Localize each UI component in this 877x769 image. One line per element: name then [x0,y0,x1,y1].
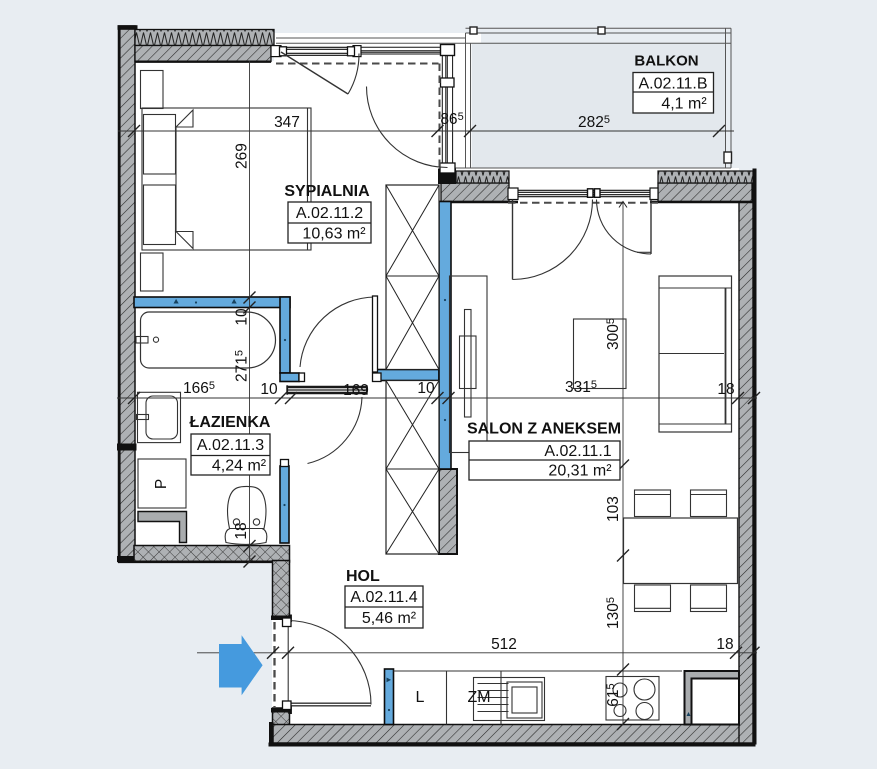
svg-text:A.02.11.3: A.02.11.3 [197,437,264,454]
svg-text:269: 269 [234,143,251,169]
svg-text:512: 512 [491,636,517,653]
svg-text:ŁAZIENKA: ŁAZIENKA [190,414,271,431]
svg-text:4,1 m²: 4,1 m² [661,96,707,113]
svg-text:347: 347 [274,114,300,131]
svg-text:HOL: HOL [346,568,380,585]
svg-text:L: L [416,689,425,706]
svg-text:169: 169 [343,382,369,399]
svg-text:20,31 m²: 20,31 m² [548,463,612,480]
svg-text:SALON Z ANEKSEM: SALON Z ANEKSEM [467,421,621,438]
svg-text:18: 18 [716,636,733,653]
svg-text:P: P [153,479,170,489]
svg-text:10: 10 [417,380,435,397]
svg-text:BALKON: BALKON [634,53,698,70]
svg-text:A.02.11.1: A.02.11.1 [544,443,611,460]
svg-text:103: 103 [605,496,622,522]
svg-text:18: 18 [717,381,734,398]
svg-text:SYPIALNIA: SYPIALNIA [284,183,370,200]
svg-text:A.02.11.B: A.02.11.B [638,76,707,93]
svg-text:A.02.11.2: A.02.11.2 [296,205,363,222]
svg-text:ZM: ZM [467,689,490,706]
svg-text:A.02.11.4: A.02.11.4 [350,589,417,606]
svg-text:10: 10 [260,381,278,398]
svg-text:4,24 m²: 4,24 m² [212,458,267,475]
svg-text:18: 18 [233,522,250,539]
svg-text:10,63 m²: 10,63 m² [302,226,366,243]
svg-text:5,46 m²: 5,46 m² [362,610,417,627]
svg-text:10: 10 [234,308,251,326]
